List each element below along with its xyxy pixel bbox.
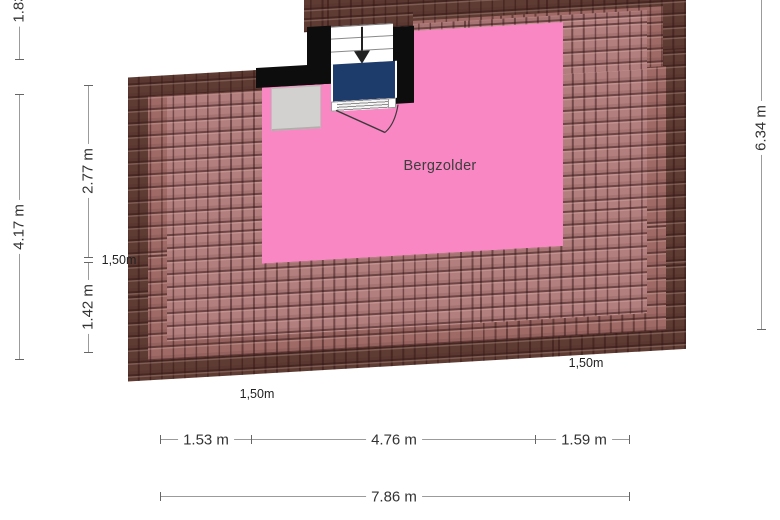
- dim-label-6.34: 6.34 m: [752, 101, 771, 155]
- dim-tick: [160, 435, 161, 444]
- dim-tick: [84, 257, 93, 258]
- dim-tick: [757, 329, 766, 330]
- dim-label-7.86: 7.86 m: [366, 489, 422, 506]
- room-label: Bergzolder: [403, 158, 476, 174]
- dim-label-1.42: 1.42 m: [79, 280, 98, 334]
- dim-tick: [84, 352, 93, 353]
- staircase: [331, 23, 393, 66]
- dim-tick: [535, 435, 536, 444]
- dim-label-4.17: 4.17 m: [10, 200, 29, 254]
- stair-landing: [331, 61, 397, 102]
- dim-tick: [84, 85, 93, 86]
- dim-tick: [160, 492, 161, 501]
- dim-label-1.59: 1.59 m: [556, 432, 612, 449]
- dim-tick: [15, 359, 24, 360]
- eave-label-bottom-left: 1,50m: [240, 387, 275, 401]
- stair-down-arrow-icon: [361, 27, 363, 51]
- dim-label-4.76: 4.76 m: [366, 432, 422, 449]
- eave-label-bottom-right: 1,50m: [569, 356, 604, 370]
- dim-line-6.34: [761, 0, 762, 330]
- dim-tick: [15, 59, 24, 60]
- dim-label-2.77: 2.77 m: [79, 144, 98, 198]
- dim-label-1.83: 1.83: [10, 0, 29, 27]
- wall-stairwell-left: [307, 26, 331, 85]
- floorplan-canvas: Bergzolder 1.83 4.17 m 2.77 m 1.42 m 6.3…: [0, 0, 780, 520]
- dim-tick: [15, 94, 24, 95]
- dim-tick: [84, 262, 93, 263]
- dim-tick: [629, 435, 630, 444]
- cabinet-block: [271, 85, 321, 131]
- dim-label-1.53: 1.53 m: [178, 432, 234, 449]
- dim-line-1.83: [19, 26, 20, 60]
- dim-tick: [251, 435, 252, 444]
- eave-label-left: 1,50m: [102, 253, 137, 267]
- door-swing: [330, 100, 402, 146]
- dim-tick: [629, 492, 630, 501]
